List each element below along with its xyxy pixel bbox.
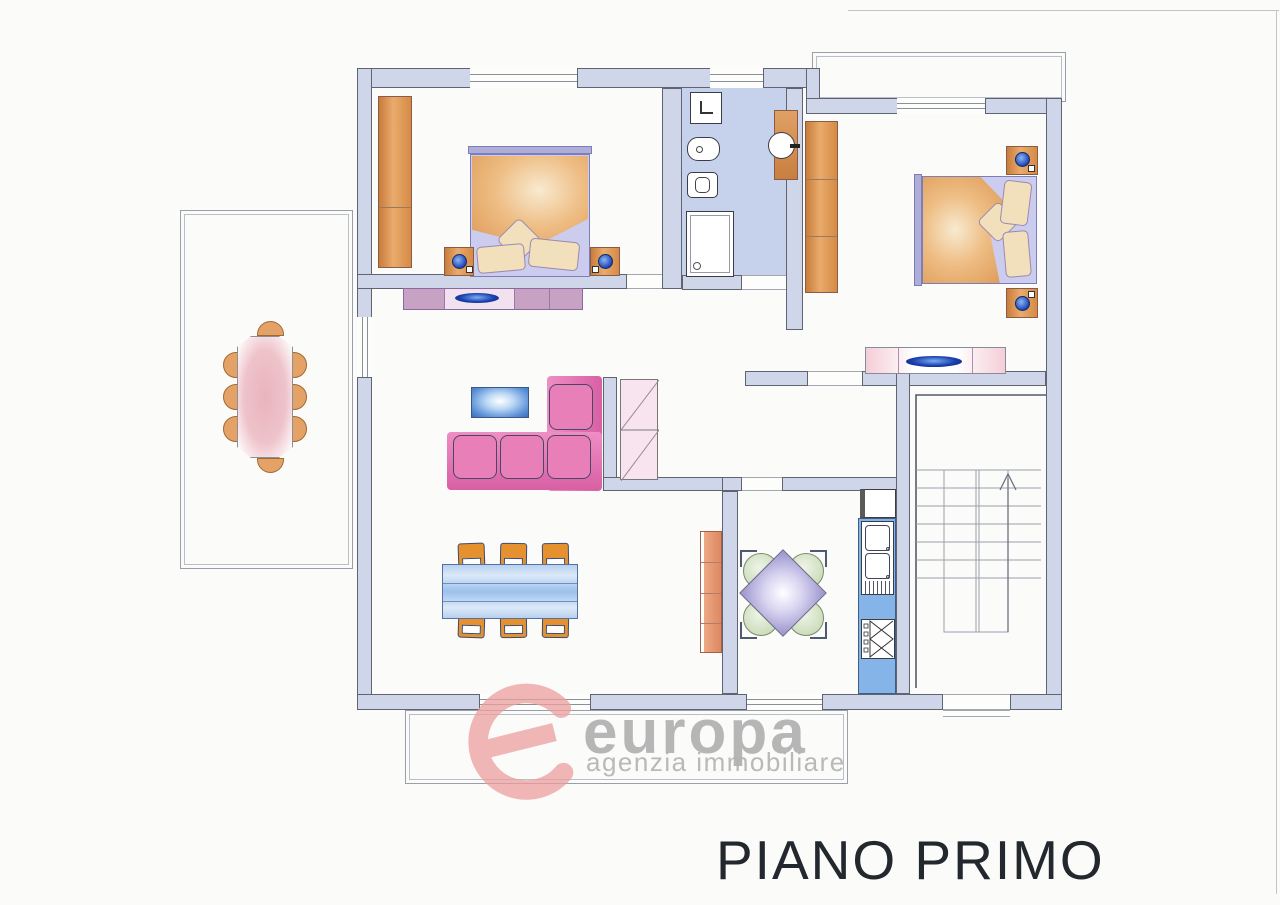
kitchen-chair-arm-sw xyxy=(740,622,757,639)
kitchen-chair-arm-nw xyxy=(740,550,757,567)
living-tv xyxy=(455,293,499,303)
hall-cabinet xyxy=(620,379,658,480)
floor-plan-page: europa agenzia immobiliare PIANO PRIMO xyxy=(0,0,1280,905)
wall-top-a2 xyxy=(577,68,711,88)
wall-stairwell-west xyxy=(896,371,910,694)
sink-tap-1 xyxy=(886,547,890,551)
bidet-drain xyxy=(696,146,703,153)
kitchen-chair-arm-se xyxy=(810,622,827,639)
bathroom-washing-machine xyxy=(690,92,722,124)
bathroom-shower xyxy=(686,211,734,277)
sink-drainer xyxy=(865,581,891,594)
sofa-cushion-1 xyxy=(453,435,497,479)
kitchen-fridge xyxy=(860,489,896,518)
bedroom1-pillow-right xyxy=(528,237,581,271)
kitchen-sink-unit xyxy=(861,521,894,595)
sofa-cushion-corner xyxy=(547,435,591,479)
kitchen-door-jamb xyxy=(722,477,742,491)
sink-tap-2 xyxy=(886,575,890,579)
wall-hall-south-1 xyxy=(745,371,808,386)
window-bedroom1 xyxy=(470,68,577,88)
wall-living-east xyxy=(603,377,617,491)
europa-logo-mark-icon xyxy=(437,676,605,814)
bedroom1-lamp-left xyxy=(452,254,467,269)
kitchen-stove xyxy=(861,619,895,659)
wall-bottom-4 xyxy=(1010,694,1062,710)
bedroom2-lamp-bottom-switch xyxy=(1028,291,1035,298)
bathroom-door-opening xyxy=(742,275,786,290)
stairwell-entry-door xyxy=(943,694,1010,710)
bedroom2-pillow-bottom xyxy=(1002,230,1032,278)
bedroom2-tv xyxy=(906,356,962,367)
bedroom1-lamp-left-switch xyxy=(466,266,473,273)
balcony-top-right-outline xyxy=(812,52,1066,102)
bathroom-bidet xyxy=(687,137,720,161)
stair-up-arrow xyxy=(1000,474,1016,632)
wall-bedroom1-east xyxy=(662,88,682,289)
wall-top-a1 xyxy=(357,68,471,88)
kitchen-door-opening xyxy=(742,477,782,491)
dining-cabinet xyxy=(700,531,722,653)
bathroom-toilet xyxy=(687,172,718,198)
bedroom1-lamp-right xyxy=(598,254,613,269)
europa-logo-tagline: agenzia immobiliare xyxy=(586,749,846,775)
sofa-cushion-chaise xyxy=(549,384,593,430)
kitchen-chair-arm-ne xyxy=(810,550,827,567)
shower-drain xyxy=(693,262,701,270)
hall-cabinet-lines xyxy=(621,380,659,481)
bedroom1-wardrobe xyxy=(378,96,412,268)
wall-bottom-3 xyxy=(822,694,943,710)
bedroom2-wardrobe xyxy=(805,121,838,293)
staircase xyxy=(910,386,1046,694)
bedroom2-lamp-top-switch xyxy=(1028,165,1035,172)
floor-title: PIANO PRIMO xyxy=(716,833,1105,888)
bedroom2-lamp-bottom xyxy=(1015,296,1030,311)
bedroom1-door-opening xyxy=(627,274,662,289)
bedroom2-bed-footboard xyxy=(914,174,922,286)
wall-top-b1 xyxy=(806,98,898,114)
sofa-cushion-2 xyxy=(500,435,544,479)
washing-machine-door-mark xyxy=(700,101,713,114)
wall-bathroom-south xyxy=(682,275,742,290)
wall-right xyxy=(1046,98,1062,710)
stairwell-entry-threshold xyxy=(943,710,1010,717)
scan-edge-line-right xyxy=(1276,10,1277,894)
bedroom1-lamp-right-switch xyxy=(592,266,599,273)
window-bedroom2 xyxy=(897,98,985,114)
window-bathroom xyxy=(710,68,763,88)
bedroom1-pillow-left xyxy=(476,243,526,274)
wall-left-lower xyxy=(357,377,372,710)
bedroom1-bed-footboard xyxy=(468,146,592,154)
bedroom2-pillow-top xyxy=(999,179,1032,226)
sink-faucet xyxy=(790,144,800,148)
scan-edge-line-top xyxy=(848,10,1279,11)
balcony-top-right-inner-line xyxy=(816,56,1062,98)
living-coffee-table xyxy=(471,387,529,418)
terrace-door-opening xyxy=(357,317,372,377)
toilet-bowl xyxy=(695,177,710,193)
wall-kitchen-west xyxy=(722,491,738,694)
stove-marks xyxy=(862,620,894,658)
dining-table xyxy=(442,564,578,619)
terrace-table xyxy=(237,336,293,458)
bedroom2-door-opening xyxy=(808,371,862,386)
